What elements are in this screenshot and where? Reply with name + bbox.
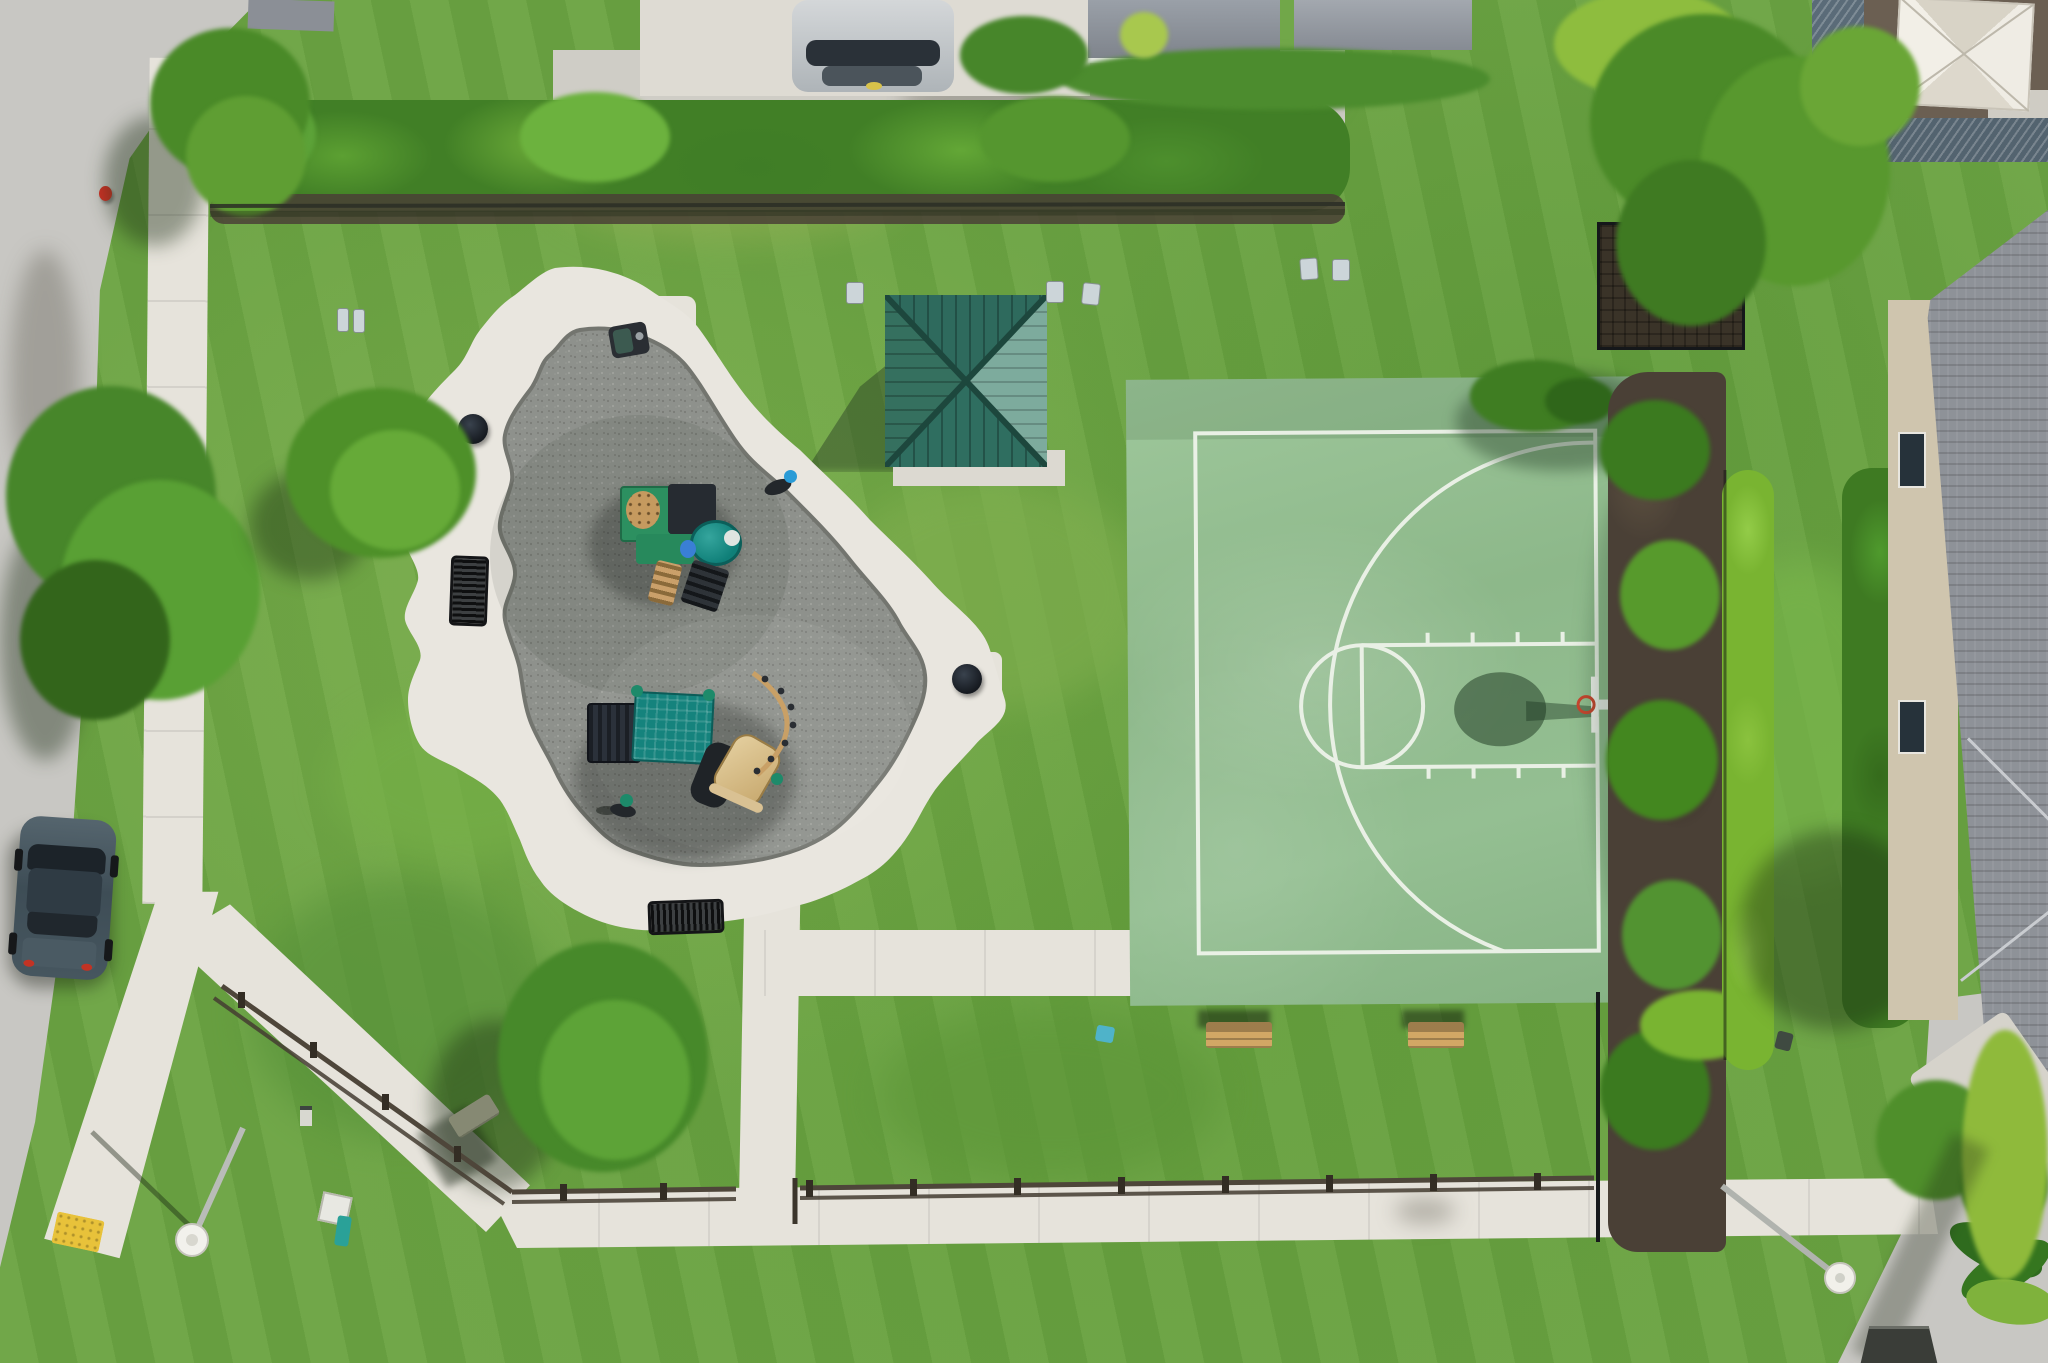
utility-pad (353, 309, 365, 333)
bbq-grill (608, 321, 651, 359)
bush-over-court (1545, 378, 1615, 424)
hedge-bump (520, 92, 670, 182)
rider-seat (784, 470, 797, 483)
metal-bench-west (449, 555, 489, 626)
utility-pad (337, 308, 349, 332)
tree (330, 430, 460, 550)
house-roof-b (1294, 0, 1472, 50)
storm-drain (1860, 1326, 1938, 1363)
car-roof (26, 867, 103, 918)
utility-pad (1081, 282, 1101, 306)
trash-can-east (952, 664, 982, 694)
parked-car-top (792, 0, 954, 92)
street-tree-overhang (1962, 1030, 2048, 1280)
house-roof-corner (248, 0, 335, 31)
utility-pad (1332, 259, 1350, 281)
ground-marker (1774, 1030, 1794, 1051)
car-wheel (110, 855, 120, 878)
small-post (300, 1106, 312, 1126)
basketball-rim (1578, 697, 1594, 713)
yard-bushes (960, 16, 1088, 94)
metal-bench-south (647, 899, 724, 936)
post-cap (771, 773, 783, 785)
post-cap (703, 689, 715, 701)
utility-pad (1046, 281, 1064, 303)
car-rear-window (26, 912, 97, 939)
car-wheel (104, 939, 114, 962)
north-hedgerow (205, 100, 1350, 212)
car-taillight (81, 963, 92, 971)
hedge-bush (1620, 540, 1720, 650)
pet-station-bin (334, 1215, 352, 1247)
car-plate (866, 82, 882, 90)
court-markings (1126, 376, 1664, 1006)
house-window (1898, 700, 1926, 754)
tree (186, 96, 306, 216)
aerial-park-photo (0, 0, 2048, 1363)
play-structure-small (594, 478, 744, 608)
tree (540, 1000, 690, 1160)
grill-knob (635, 331, 644, 340)
picnic-table (447, 1093, 500, 1139)
bright-hedge-strip (1722, 470, 1774, 1070)
spring-rider (606, 792, 646, 828)
rider-seat (620, 794, 633, 807)
tree (20, 560, 170, 720)
backboard (1591, 677, 1598, 733)
car-windshield (806, 40, 940, 66)
utility-pad (846, 282, 864, 304)
tree-cluster (1800, 26, 1920, 146)
parked-car (11, 815, 118, 981)
car-wheel (8, 932, 18, 955)
hedge-bump (980, 96, 1130, 182)
hedge-bush (1606, 700, 1718, 820)
car-wheel (14, 848, 24, 871)
play-structure-large (575, 685, 815, 875)
grill-lid (612, 328, 634, 355)
wood-bench (1206, 1022, 1272, 1048)
teal-shade-canopy (631, 691, 715, 765)
spring-rider (764, 468, 804, 502)
post-cap (631, 685, 643, 697)
tan-climb-panel (626, 491, 660, 529)
cooler-box (1095, 1025, 1116, 1044)
hedge-bush (1600, 400, 1710, 500)
fire-hydrant (99, 186, 112, 201)
blue-panel (680, 540, 696, 558)
wood-bench (1408, 1022, 1464, 1048)
yellow-bush (1120, 12, 1168, 58)
ladder-ramp (647, 559, 682, 606)
grass-patch (880, 1010, 1220, 1180)
front-hedge (1060, 48, 1490, 110)
house-window (1898, 432, 1926, 488)
dark-climb-ramp (680, 559, 730, 613)
hedge-bush (1622, 880, 1722, 990)
utility-pad (1299, 257, 1318, 280)
tunnel-mouth (724, 530, 740, 546)
tree-cluster (1616, 160, 1766, 326)
basketball-court (1126, 376, 1664, 1006)
